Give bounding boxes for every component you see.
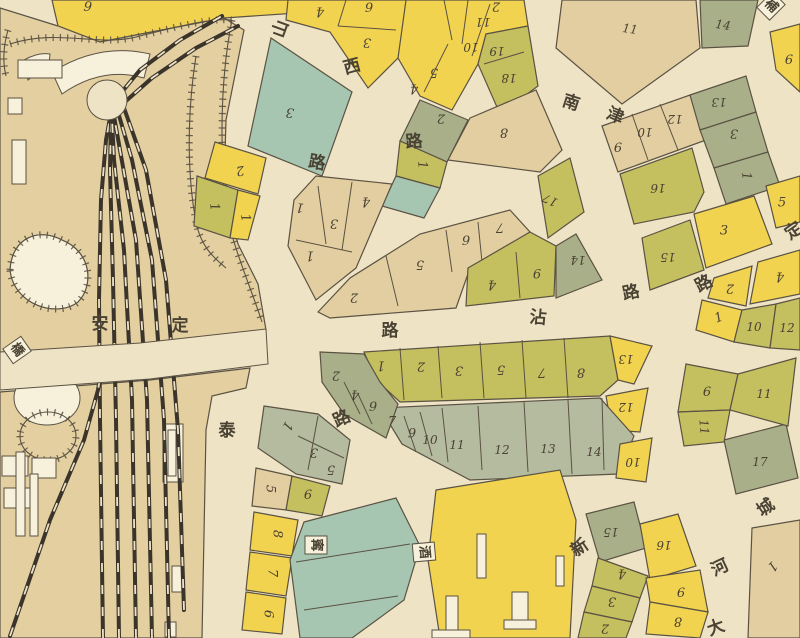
parcel-number: 11 bbox=[756, 387, 771, 401]
parcel-number: 6 bbox=[533, 268, 541, 283]
building-footprint bbox=[432, 630, 470, 638]
parcel-number: 11 bbox=[475, 15, 490, 29]
parcel-number: 5 bbox=[497, 362, 505, 377]
parcel-number: 5 bbox=[327, 462, 335, 477]
parcel-number: 4 bbox=[488, 277, 497, 292]
parcel-number: 2 bbox=[726, 281, 735, 296]
parcel-number: 4 bbox=[410, 81, 419, 96]
parcel-number: 3 bbox=[310, 445, 318, 460]
parcel-number: 6 bbox=[369, 398, 377, 413]
plate-label: 寗 bbox=[309, 538, 325, 551]
parcel-number: 2 bbox=[417, 359, 426, 374]
parcel-number: 8 bbox=[270, 530, 285, 538]
parcel-number: 3 bbox=[455, 363, 463, 378]
parcel-number: 10 bbox=[637, 125, 653, 139]
parcel-number: 4 bbox=[362, 194, 371, 209]
parcel-number: 3 bbox=[730, 126, 738, 141]
parcel-number: 9 bbox=[703, 383, 711, 398]
parcel-number: 4 bbox=[316, 4, 325, 19]
map-image: 6211346345211101918218171114991012133161… bbox=[0, 0, 800, 638]
yard-building bbox=[16, 452, 25, 536]
parcel-number: 13 bbox=[618, 352, 634, 366]
building-footprint bbox=[556, 556, 564, 586]
parcel-number: 1 bbox=[377, 358, 385, 373]
parcel-number: 12 bbox=[779, 321, 794, 335]
parcel-number: 6 bbox=[261, 610, 276, 618]
parcel-number: 13 bbox=[711, 95, 727, 109]
parcel-number: 14 bbox=[714, 17, 731, 33]
parcel-number: 6 bbox=[462, 232, 470, 247]
parcel-number: 9 bbox=[785, 51, 793, 66]
parcel-number: 4 bbox=[618, 566, 627, 581]
parcel-number: 2 bbox=[332, 368, 341, 383]
parcel-number: 5 bbox=[263, 485, 278, 493]
parcel-number: 14 bbox=[570, 253, 585, 267]
parcel-number: 9 bbox=[614, 139, 622, 154]
parcel-number: 6 bbox=[83, 0, 93, 13]
street-label: 定 bbox=[172, 315, 189, 336]
yard-building bbox=[18, 60, 62, 78]
parcel-number: 14 bbox=[586, 445, 601, 459]
parcel-number: 16 bbox=[650, 181, 666, 195]
parcel-number: 3 bbox=[608, 594, 616, 609]
turntable bbox=[87, 80, 127, 120]
parcel-number: 2 bbox=[437, 111, 446, 126]
parcel-number: 16 bbox=[656, 538, 672, 552]
parcel-number: 18 bbox=[501, 71, 517, 85]
parcel-number: 12 bbox=[667, 112, 682, 126]
parcel-number: 11 bbox=[696, 419, 711, 435]
parcel-number: 19 bbox=[489, 44, 505, 58]
parcel-number: 5 bbox=[430, 65, 438, 80]
parcel-number: 3 bbox=[720, 224, 728, 239]
map-canvas: 6211346345211101918218171114991012133161… bbox=[0, 0, 800, 638]
yard-building bbox=[8, 98, 22, 114]
parcel-number: 9 bbox=[408, 427, 416, 442]
parcel-number: 8 bbox=[500, 125, 508, 140]
parcel-number: 1 bbox=[295, 199, 305, 215]
parcel-number: 1 bbox=[414, 160, 430, 170]
parcel-number: 6 bbox=[365, 0, 373, 14]
street-label: 路 bbox=[382, 320, 400, 341]
parcel-number: 10 bbox=[463, 40, 479, 54]
parcel-number: 17 bbox=[752, 455, 768, 469]
parcel-number: 15 bbox=[660, 250, 675, 264]
parcel-number: 5 bbox=[416, 257, 424, 272]
parcel-number: 8 bbox=[577, 365, 585, 380]
parcel-number: 3 bbox=[285, 104, 295, 120]
parcel-number: 13 bbox=[540, 442, 556, 456]
parcel-number: 5 bbox=[778, 196, 786, 211]
yard-building bbox=[12, 140, 26, 184]
parcel-number: 3 bbox=[363, 35, 371, 50]
yard-building bbox=[30, 474, 38, 536]
parcel-number: 15 bbox=[603, 525, 618, 539]
block-tan-1-block bbox=[748, 520, 800, 638]
parcel-number: 7 bbox=[388, 415, 397, 430]
parcel-number: 3 bbox=[330, 216, 338, 231]
street-label: 路 bbox=[405, 130, 425, 152]
parcel-number: 12 bbox=[494, 443, 509, 457]
parcel-number: 1 bbox=[306, 248, 314, 263]
parcel-number: 2 bbox=[601, 621, 610, 636]
parcel-number: 9 bbox=[304, 486, 312, 501]
parcel-number: 2 bbox=[350, 290, 359, 305]
street-label: 沾 bbox=[529, 306, 548, 328]
street-label: 泰 bbox=[219, 420, 237, 441]
parcel-number: 7 bbox=[537, 365, 546, 380]
parcel-number: 2 bbox=[492, 0, 501, 14]
street-label: 安 bbox=[92, 313, 109, 334]
parcel-number: 9 bbox=[677, 584, 685, 599]
parcel-number: 11 bbox=[449, 438, 464, 452]
parcel-number: 7 bbox=[495, 220, 504, 235]
parcel-number: 4 bbox=[776, 269, 785, 284]
parcel-number: 1 bbox=[738, 171, 754, 181]
building-footprint bbox=[477, 534, 486, 578]
parcel-number: 10 bbox=[746, 320, 762, 334]
parcel-number: 10 bbox=[422, 433, 438, 447]
yard-building bbox=[168, 430, 176, 476]
parcel-number: 11 bbox=[621, 21, 638, 37]
parcel-number: 4 bbox=[351, 387, 360, 402]
building-footprint bbox=[504, 620, 536, 629]
parcel-number: 12 bbox=[618, 400, 633, 414]
parcel-number: 8 bbox=[674, 614, 682, 629]
parcel-number: 10 bbox=[625, 455, 641, 469]
parcel-number: 7 bbox=[265, 569, 280, 578]
plate-label: 酒 bbox=[416, 545, 432, 559]
